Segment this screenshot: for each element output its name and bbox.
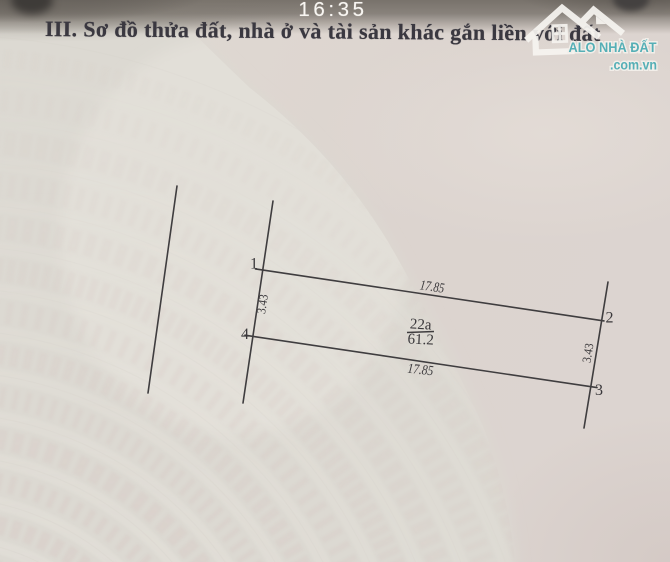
svg-text:17.85: 17.85 xyxy=(407,362,434,380)
svg-text:2: 2 xyxy=(606,310,614,327)
svg-text:.com.vn: .com.vn xyxy=(610,58,657,73)
svg-text:ALO NHÀ ĐẤT: ALO NHÀ ĐẤT xyxy=(569,39,657,55)
svg-text:3: 3 xyxy=(595,382,603,399)
svg-text:1: 1 xyxy=(250,256,258,273)
svg-text:3.43: 3.43 xyxy=(254,293,271,314)
svg-text:61.2: 61.2 xyxy=(407,331,434,348)
svg-text:4: 4 xyxy=(241,326,249,343)
svg-text:3.43: 3.43 xyxy=(580,342,597,364)
